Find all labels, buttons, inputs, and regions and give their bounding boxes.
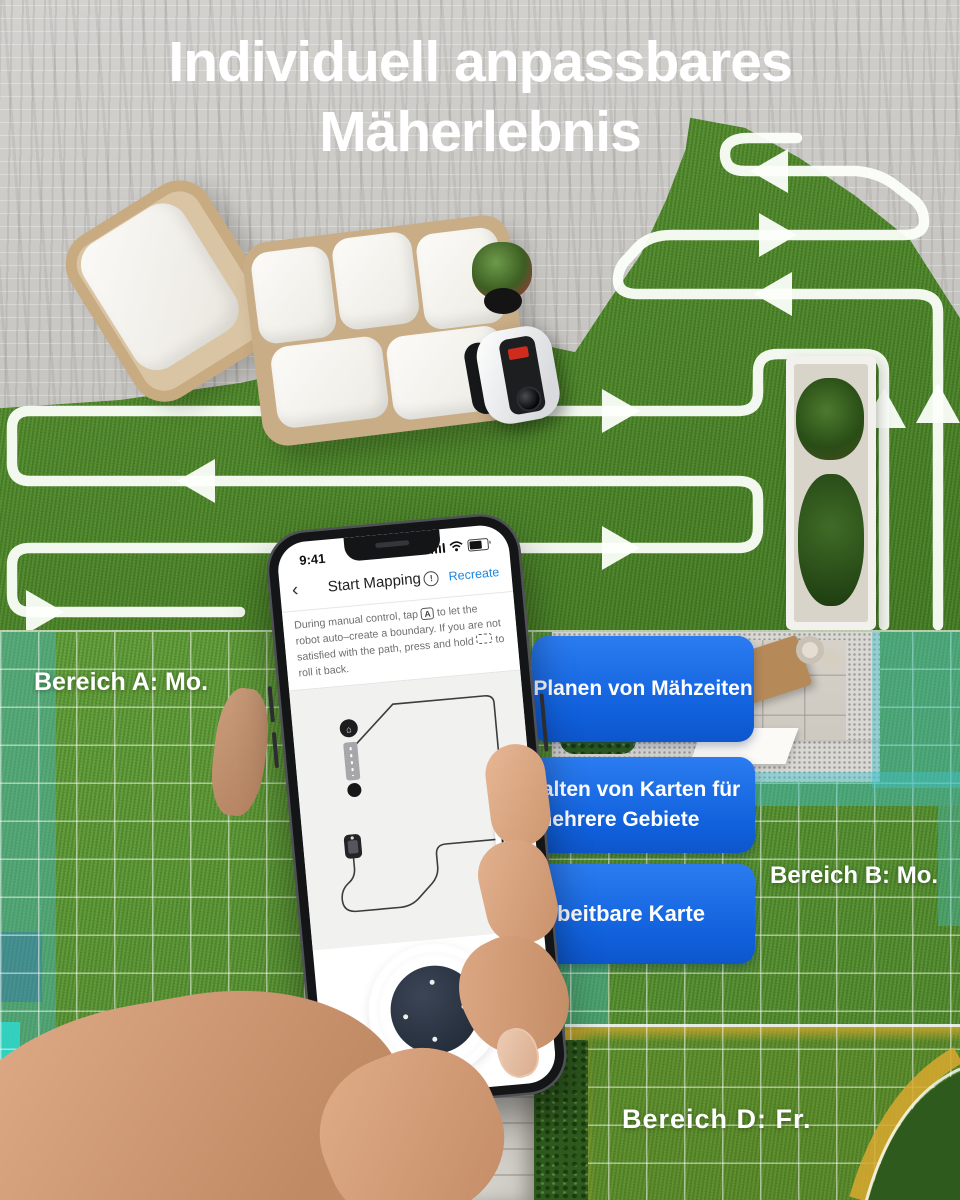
teal-zone-right-edge	[938, 806, 960, 926]
title-line-1: Individuell anpassbares	[0, 28, 960, 98]
battery-icon	[467, 538, 489, 552]
product-infographic: Individuell anpassbares Mäherlebnis	[0, 0, 960, 1200]
zone-d-label: Bereich D: Fr.	[622, 1104, 812, 1135]
auto-inline-icon: A	[420, 607, 434, 620]
callout-schedule: Planen von Mähzeiten	[532, 636, 754, 742]
callout-schedule-label: Planen von Mähzeiten	[533, 674, 752, 704]
page-title: Individuell anpassbares Mäherlebnis	[0, 28, 960, 167]
planter-box	[786, 356, 876, 630]
potted-plant	[472, 242, 534, 318]
info-icon[interactable]: !	[423, 571, 439, 587]
title-line-2: Mäherlebnis	[0, 98, 960, 168]
screen-title: Start Mapping!	[317, 568, 449, 597]
svg-text:⌂: ⌂	[346, 724, 352, 734]
robot-mower	[458, 314, 578, 434]
back-button[interactable]: ‹	[291, 577, 319, 601]
clock: 9:41	[299, 551, 326, 568]
wifi-icon	[448, 541, 464, 553]
zone-a-label: Bereich A: Mo.	[34, 668, 208, 697]
zone-b-label: Bereich B: Mo.	[770, 862, 938, 890]
patio-stool	[796, 636, 824, 664]
corner-hedge	[840, 1047, 960, 1200]
waypoint-dot	[347, 783, 362, 798]
teal-zone-patio-right	[872, 632, 960, 788]
backtrack-inline-icon	[476, 633, 493, 644]
teal-zone-patio-bottom	[742, 772, 960, 806]
recreate-button[interactable]: Recreate	[448, 565, 500, 584]
patio-stool-small	[822, 650, 840, 668]
